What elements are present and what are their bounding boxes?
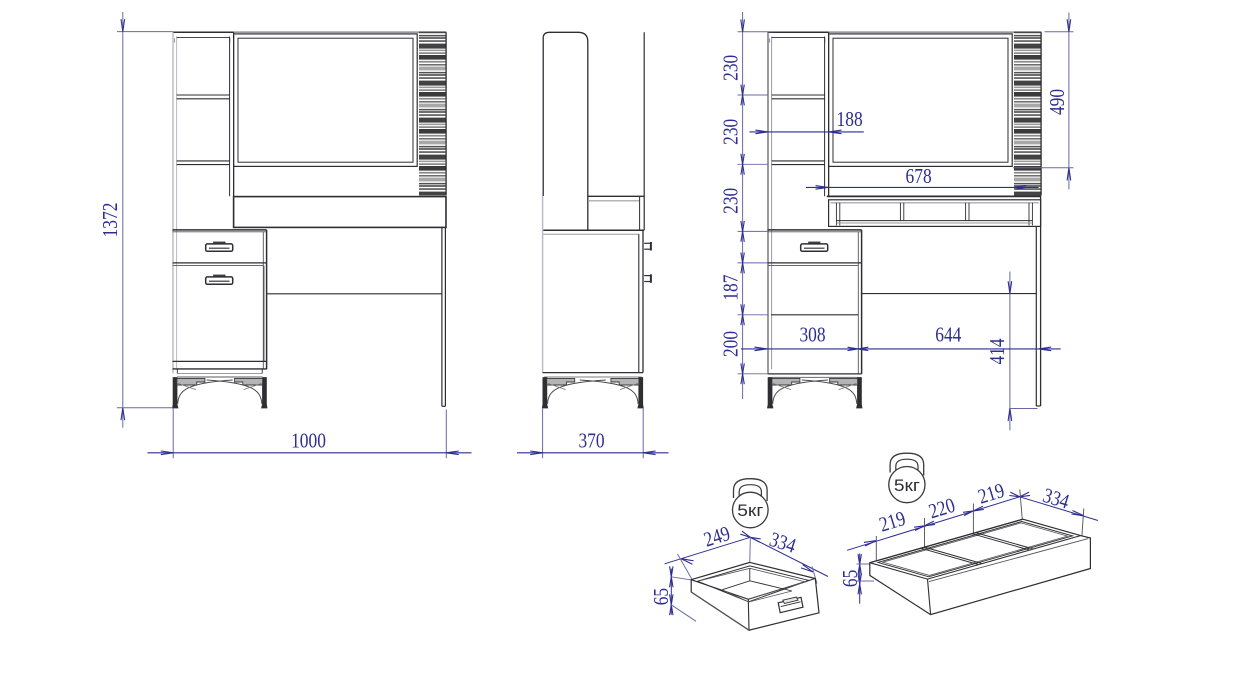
svg-text:678: 678 [906, 164, 932, 188]
svg-text:1372: 1372 [98, 203, 122, 238]
svg-text:230: 230 [718, 188, 742, 214]
svg-text:644: 644 [935, 323, 962, 347]
svg-text:200: 200 [718, 331, 742, 357]
svg-text:5кг: 5кг [737, 501, 763, 520]
svg-text:370: 370 [578, 428, 604, 452]
svg-text:1000: 1000 [291, 428, 326, 452]
svg-text:188: 188 [837, 107, 863, 131]
svg-text:490: 490 [1045, 89, 1069, 115]
svg-text:308: 308 [799, 323, 825, 347]
svg-text:230: 230 [718, 119, 742, 145]
svg-text:65: 65 [649, 588, 673, 605]
svg-text:5кг: 5кг [894, 476, 920, 495]
svg-text:230: 230 [718, 55, 742, 81]
svg-text:187: 187 [718, 275, 742, 301]
svg-text:65: 65 [838, 570, 862, 587]
svg-text:414: 414 [985, 338, 1009, 365]
